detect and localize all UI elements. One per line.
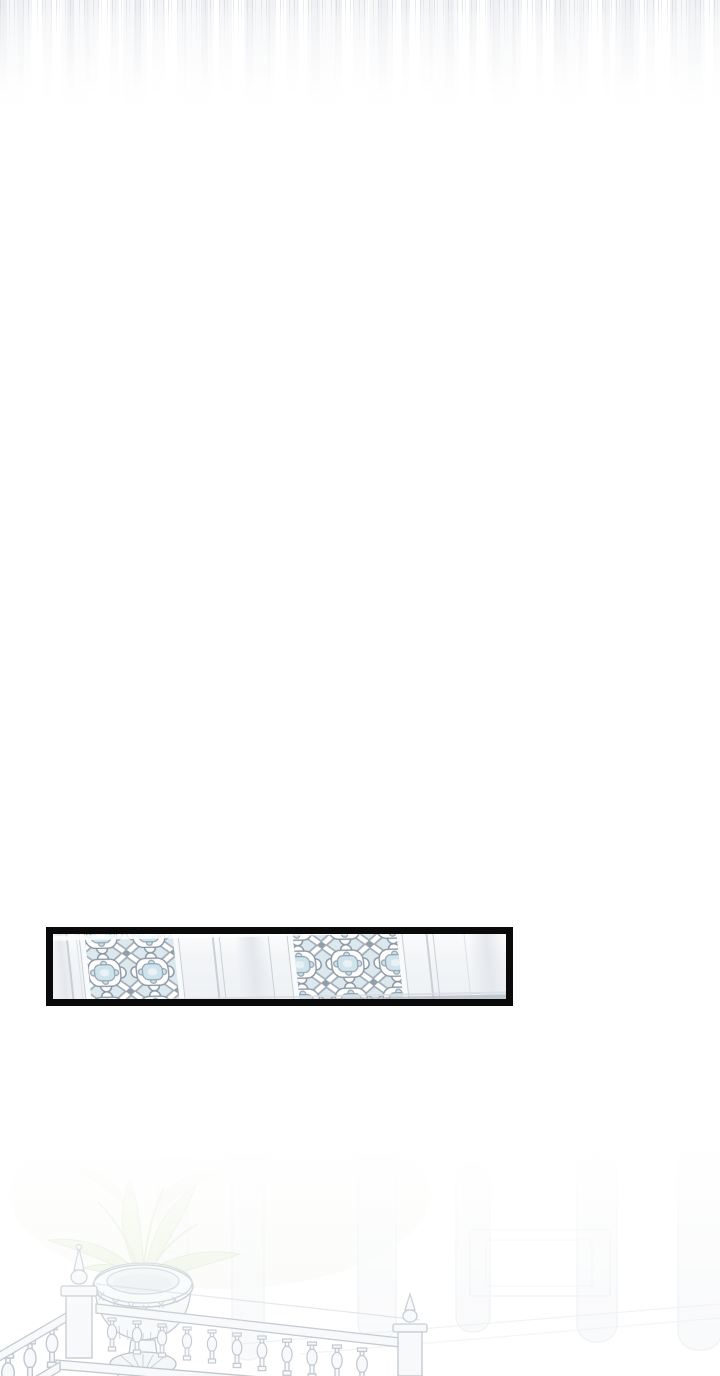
streak-layer-medium (0, 0, 720, 100)
lattice-screen-left (78, 934, 187, 999)
lattice-fill-right (291, 934, 406, 999)
baluster (332, 1345, 342, 1376)
column (456, 1164, 490, 1332)
post-finial-ball (403, 1310, 417, 1322)
post-cap (61, 1286, 97, 1296)
wall-closeup-panel (46, 927, 513, 1006)
lattice-screen-right (286, 934, 411, 999)
lattice-pattern-left (83, 934, 182, 999)
post-finial-tip (77, 1245, 82, 1250)
post-finial-spike (405, 1294, 415, 1310)
column (358, 1144, 396, 1340)
wall-surface (53, 934, 506, 999)
previous-panel-fade-streaks (0, 0, 720, 112)
lattice-fill-left (83, 934, 182, 999)
baluster (357, 1348, 368, 1376)
baluster (207, 1330, 216, 1363)
lattice-pattern-right (291, 934, 406, 999)
door-panel (486, 1240, 592, 1286)
streak-layer-dense (0, 0, 720, 56)
baluster (307, 1342, 317, 1376)
streak-layer-wide (0, 0, 720, 110)
far-post (393, 1294, 427, 1376)
post-cap (393, 1324, 427, 1332)
panel-artwork (53, 934, 506, 999)
wall-shading-band (466, 934, 506, 999)
baluster (282, 1339, 292, 1375)
webtoon-page (0, 0, 720, 1376)
post-finial-ball (71, 1270, 87, 1284)
balcony-scene (0, 1144, 720, 1376)
post-body (66, 1296, 92, 1358)
baluster (182, 1327, 191, 1360)
post-body (398, 1332, 422, 1376)
